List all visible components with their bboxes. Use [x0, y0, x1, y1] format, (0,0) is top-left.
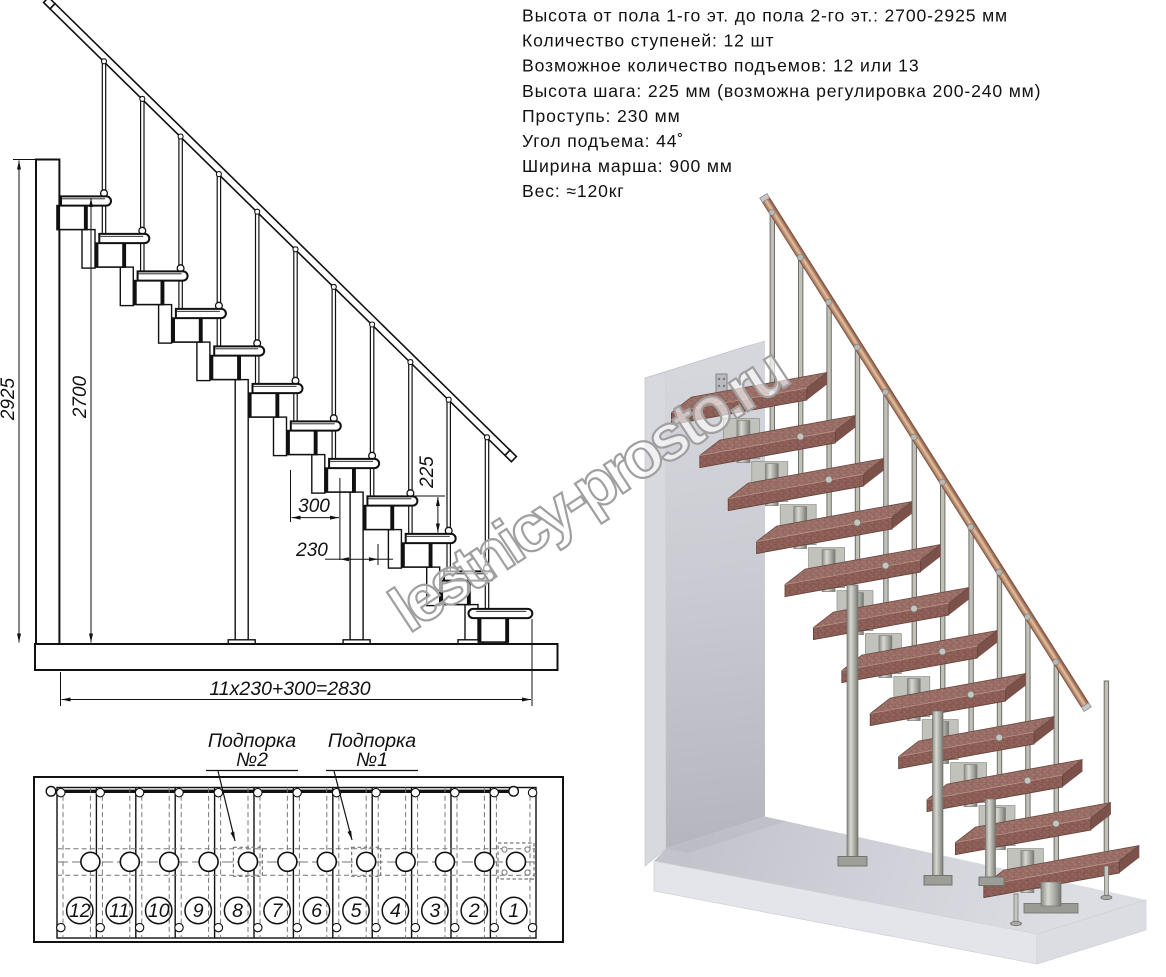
svg-text:Высота от пола 1-го эт. до пол: Высота от пола 1-го эт. до пола 2-го эт.…: [522, 6, 1008, 26]
svg-text:№2: №2: [236, 749, 268, 771]
svg-text:9: 9: [193, 900, 204, 922]
svg-text:11x230+300=2830: 11x230+300=2830: [209, 678, 370, 700]
svg-text:2925: 2925: [0, 377, 19, 421]
svg-text:1: 1: [508, 900, 519, 922]
svg-text:225: 225: [417, 456, 438, 489]
svg-text:Высота шага: 225 мм (возможна: Высота шага: 225 мм (возможна регулировк…: [522, 81, 1041, 101]
svg-text:2: 2: [468, 900, 480, 922]
svg-text:10: 10: [148, 900, 170, 922]
svg-text:Вес: ≈120кг: Вес: ≈120кг: [522, 181, 625, 201]
svg-text:Угол подъема: 44˚: Угол подъема: 44˚: [522, 131, 684, 151]
svg-text:12: 12: [69, 900, 91, 922]
svg-text:300: 300: [298, 496, 330, 517]
svg-text:Проступь: 230 мм: Проступь: 230 мм: [522, 106, 681, 126]
svg-text:5: 5: [351, 900, 362, 922]
svg-text:11: 11: [109, 900, 129, 922]
svg-text:4: 4: [390, 900, 401, 922]
svg-text:6: 6: [311, 900, 322, 922]
svg-text:3: 3: [429, 900, 440, 922]
svg-text:№1: №1: [356, 749, 388, 771]
svg-text:2700: 2700: [70, 375, 91, 419]
svg-text:230: 230: [295, 540, 328, 561]
svg-text:Ширина марша: 900 мм: Ширина марша: 900 мм: [522, 156, 733, 176]
svg-text:7: 7: [272, 900, 284, 922]
svg-text:8: 8: [232, 900, 243, 922]
svg-text:Количество ступеней: 12 шт: Количество ступеней: 12 шт: [522, 31, 774, 51]
svg-text:Возможное количество подъемов:: Возможное количество подъемов: 12 или 13: [522, 56, 919, 76]
